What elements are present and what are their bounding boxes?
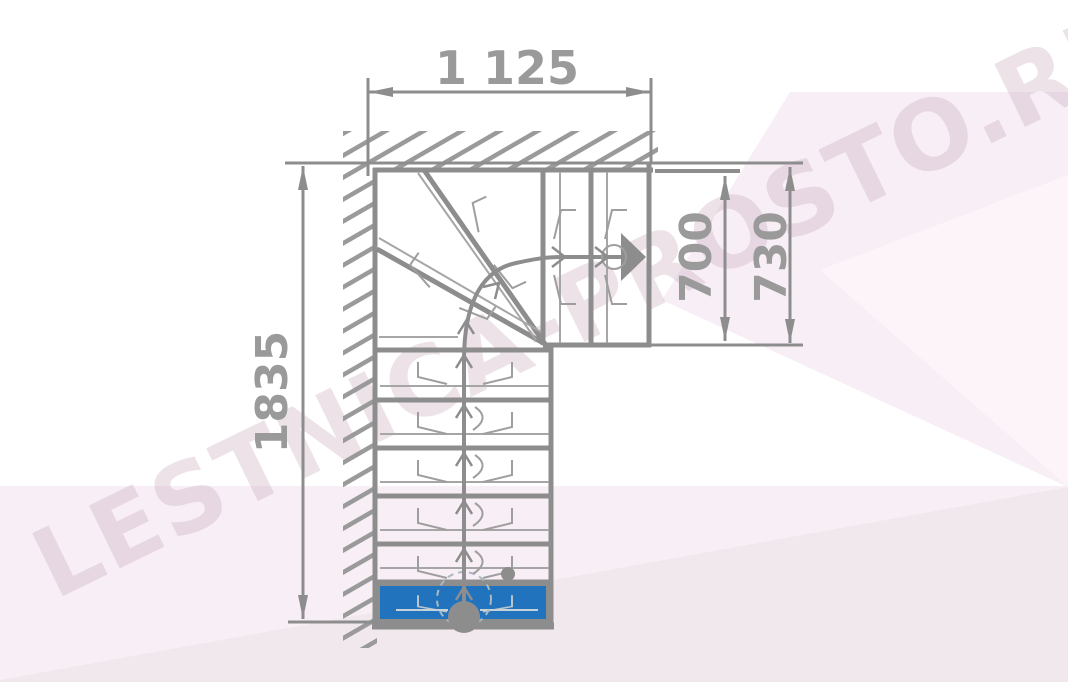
dim-arrow-icon [369,87,393,97]
walkline-start-circle-icon [448,601,480,633]
dim-label-inner-height: 700 [671,211,722,303]
dim-label-top-width: 1 125 [435,41,579,95]
left-wall-hatch [343,168,377,648]
dim-label-total-length: 1835 [247,331,298,453]
staircase-plan-drawing: LESTNICA-PROSTO.RU [0,0,1068,682]
dim-label-outer-height: 730 [746,211,797,303]
dim-arrow-icon [626,87,650,97]
dimension-top-width: 1 125 [369,41,650,97]
post-marker-icon [501,567,515,581]
plan-svg: LESTNICA-PROSTO.RU [0,0,1068,682]
dim-arrow-icon [298,166,308,190]
